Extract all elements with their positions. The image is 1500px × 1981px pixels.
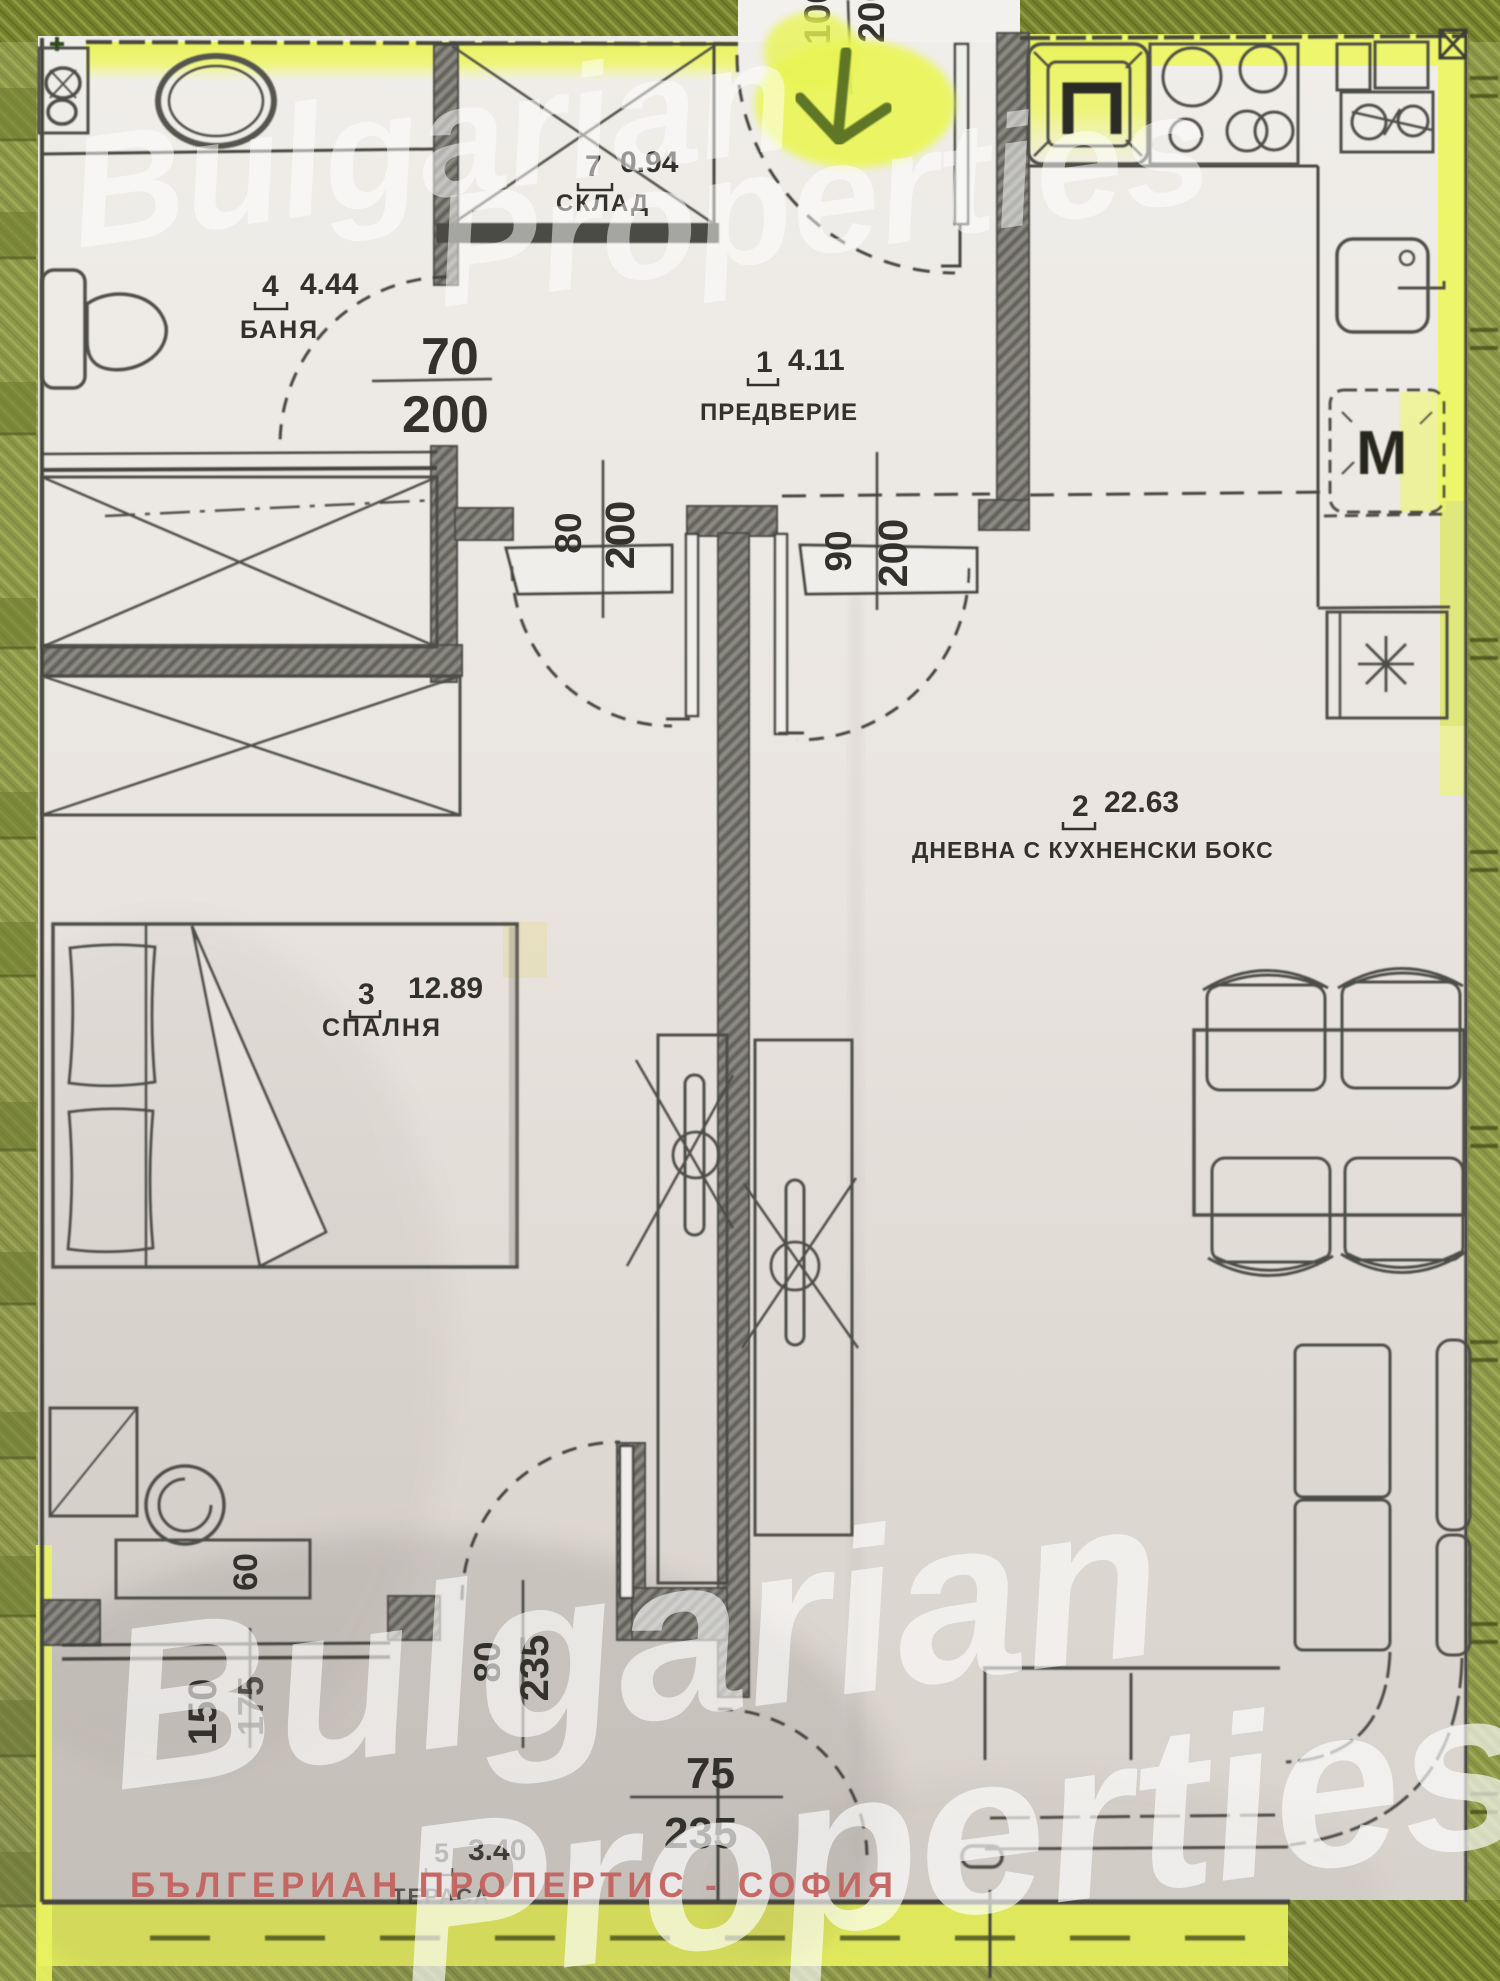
svg-text:4.11: 4.11 [788,344,845,377]
svg-text:200: 200 [870,519,916,587]
svg-text:БЪЛГЕРИАН ПРОПЕРТИС - СОФИЯ: БЪЛГЕРИАН ПРОПЕРТИС - СОФИЯ [130,1866,899,1905]
svg-text:4.44: 4.44 [300,268,359,301]
svg-text:СПАЛНЯ: СПАЛНЯ [322,1014,442,1042]
svg-text:1: 1 [756,346,773,379]
svg-text:3: 3 [358,978,375,1011]
svg-text:12.89: 12.89 [408,972,483,1005]
svg-text:200: 200 [597,501,643,569]
svg-text:200: 200 [851,0,892,43]
svg-text:M: M [1356,419,1408,488]
svg-text:БАНЯ: БАНЯ [240,316,319,344]
svg-text:ДНЕВНА С КУХНЕНСКИ БОКС: ДНЕВНА С КУХНЕНСКИ БОКС [912,837,1274,863]
svg-text:90: 90 [818,530,859,571]
svg-text:22.63: 22.63 [1104,786,1179,819]
svg-text:200: 200 [402,386,489,444]
svg-text:80: 80 [548,512,589,553]
svg-text:4: 4 [262,270,279,303]
svg-text:2: 2 [1072,790,1089,823]
svg-text:ПРЕДВЕРИЕ: ПРЕДВЕРИЕ [700,399,858,426]
